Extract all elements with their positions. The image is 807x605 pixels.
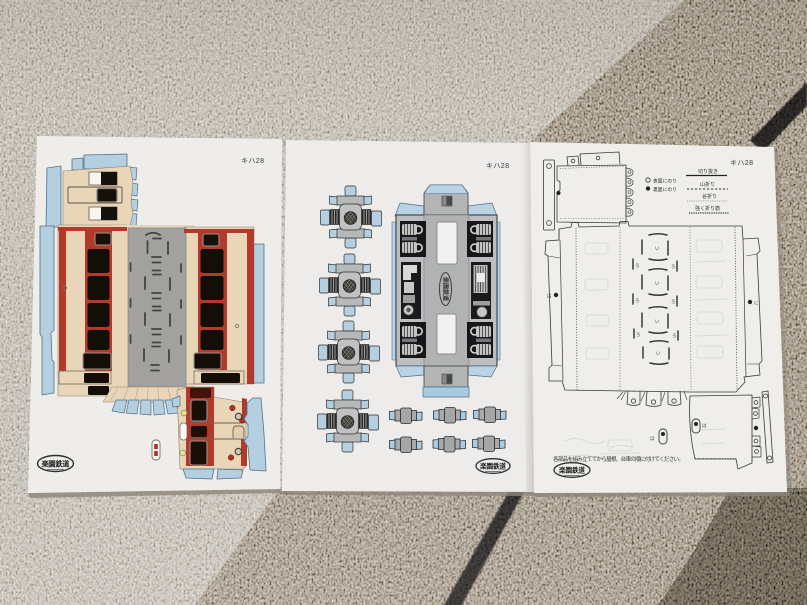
svg-text:楽園鉄道: 楽園鉄道	[41, 459, 71, 468]
svg-text:キハ28: キハ28	[730, 160, 753, 167]
svg-text:各部品を組み立ててから屋根、台車の順に付けてください。: 各部品を組み立ててから屋根、台車の順に付けてください。	[553, 455, 684, 463]
svg-text:キハ28: キハ28	[486, 163, 509, 170]
svg-text:い: い	[655, 246, 660, 251]
svg-text:キハ28: キハ28	[241, 158, 264, 165]
svg-text:楽園鉄道: 楽園鉄道	[558, 466, 585, 475]
svg-text:谷折り: 谷折り	[702, 193, 717, 200]
svg-text:楽園鉄道: 楽園鉄道	[441, 276, 449, 301]
svg-text:切り抜き: 切り抜き	[698, 168, 718, 175]
svg-text:い: い	[655, 319, 660, 324]
svg-text:山折り: 山折り	[700, 181, 715, 188]
svg-text:裏面にのり: 裏面にのり	[653, 186, 677, 193]
svg-text:い: い	[655, 281, 660, 286]
svg-text:楽園鉄道: 楽園鉄道	[479, 462, 506, 471]
svg-text:強く折り筋: 強く折り筋	[695, 205, 720, 212]
svg-text:表面にのり: 表面にのり	[653, 178, 677, 185]
svg-text:い: い	[656, 351, 661, 356]
